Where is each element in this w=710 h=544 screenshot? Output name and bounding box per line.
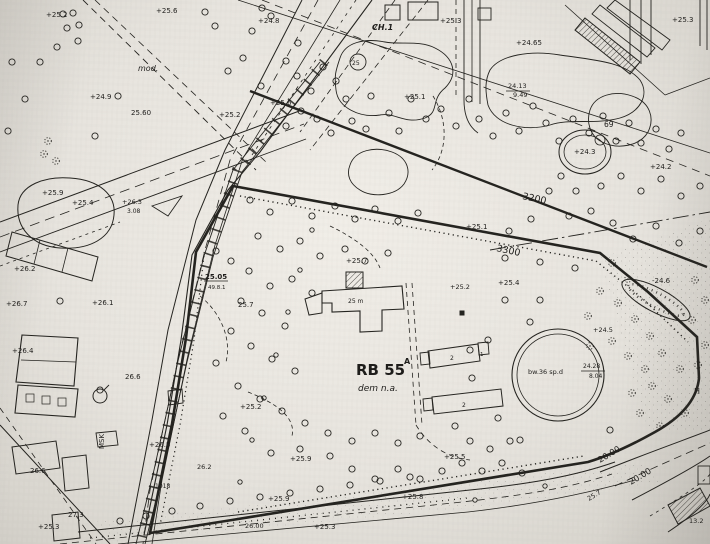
tree-symbol-dot (611, 262, 612, 263)
spot-label: 2 (462, 402, 466, 409)
tree-symbol (507, 438, 513, 444)
tree-symbol (197, 503, 203, 509)
tree-symbol (295, 40, 301, 46)
tree-symbol (417, 433, 423, 439)
tree-symbol (572, 265, 578, 271)
spot-label: +25.6 (156, 7, 178, 15)
tree-symbol (115, 93, 121, 99)
tree-symbol (249, 28, 255, 34)
tree-symbol (268, 450, 274, 456)
tree-symbol (97, 387, 103, 393)
tree-symbol-dot (649, 335, 650, 336)
tree-symbol-dot (704, 299, 705, 300)
spot-label: +25.8 (402, 493, 423, 501)
tree-symbol (573, 188, 579, 194)
tree-symbol (259, 310, 265, 316)
tree-symbol (467, 438, 473, 444)
tree-symbol (452, 423, 458, 429)
tree-symbol (423, 116, 429, 122)
tree-symbol (283, 58, 289, 64)
tree-symbol (292, 368, 298, 374)
tree-symbol-dot (639, 412, 640, 413)
tree-symbol (467, 347, 473, 353)
spot-label: +24.5 (593, 326, 613, 334)
spot-label: +26.4 (12, 347, 34, 355)
tree-symbol (349, 118, 355, 124)
tree-symbol (363, 126, 369, 132)
tree-symbol-dot (651, 385, 652, 386)
spot-label: +25.6 (270, 99, 292, 107)
tree-symbol (453, 123, 459, 129)
spot-label: +25.4 (72, 199, 94, 207)
tree-symbol (438, 106, 444, 112)
tree-symbol (499, 460, 505, 466)
tree-symbol (618, 173, 624, 179)
spot-label: +25.7 (346, 257, 367, 265)
tree-symbol (588, 208, 594, 214)
spot-label: 27.3 (68, 511, 84, 519)
tree-symbol-dot (587, 315, 588, 316)
tree-symbol (372, 430, 378, 436)
tree-symbol (70, 10, 76, 16)
tree-symbol (267, 283, 273, 289)
spot-label: +25.3 (440, 17, 461, 25)
tree-symbol (258, 83, 264, 89)
tree-symbol (54, 44, 60, 50)
tree-symbol (479, 468, 485, 474)
spot-label: +24.2 (650, 163, 671, 171)
spot-label: 26.00 (245, 522, 264, 530)
spot-label: +26.3 (122, 198, 142, 206)
tree-symbol (333, 78, 339, 84)
spot-label: 25 m (348, 298, 364, 305)
spot-label: +25.5 (444, 453, 465, 461)
tree-symbol-dot (627, 278, 628, 279)
spot-label: H (694, 387, 700, 396)
tree-symbol-dot (704, 344, 705, 345)
tree-symbol (9, 59, 15, 65)
spot-label: +26.7 (6, 300, 27, 308)
tree-symbol (92, 133, 98, 139)
spot-label: 69 (604, 120, 614, 129)
spot-label: 26.2 (197, 463, 211, 471)
spot-label: 20.00 (596, 444, 622, 465)
tree-symbol-dot (684, 412, 685, 413)
tree-symbol (267, 209, 273, 215)
tree-symbol-dot (659, 425, 660, 426)
spot-label: 25 (352, 60, 360, 67)
tree-symbol (242, 428, 248, 434)
tree-symbol-dot (667, 398, 668, 399)
tree-symbol (530, 103, 536, 109)
manhole-symbol (298, 268, 302, 272)
spot-label: 25.05 (205, 273, 227, 281)
spot-label: bw.36 sp.d (528, 368, 563, 376)
tree-symbol (487, 446, 493, 452)
spot-label: 13.2 (689, 517, 703, 525)
tree-symbol (528, 216, 534, 222)
tree-symbol (328, 130, 334, 136)
tree-symbol-dot (611, 340, 612, 341)
tree-symbol (395, 218, 401, 224)
tree-symbol (352, 216, 358, 222)
spot-label: 9.49 (513, 91, 527, 99)
spot-label: +25.9 (42, 189, 63, 197)
spot-label: +24.9 (90, 93, 111, 101)
tree-symbol-dot (697, 364, 698, 365)
tree-symbol (658, 176, 664, 182)
spot-label: mod. (138, 64, 158, 73)
tree-symbol (653, 126, 659, 132)
tree-symbol (466, 96, 472, 102)
manhole-symbol (310, 228, 314, 232)
tree-symbol (246, 268, 252, 274)
tree-symbol (469, 375, 475, 381)
manhole-symbol (286, 310, 290, 314)
tree-symbol-dot (694, 279, 695, 280)
spot-label: RB 55 (356, 361, 405, 379)
tree-symbol (257, 494, 263, 500)
spot-label: A (404, 357, 411, 366)
tree-symbol (343, 96, 349, 102)
tree-symbol (22, 96, 28, 102)
tree-symbol (309, 290, 315, 296)
tree-symbol (57, 298, 63, 304)
tree-symbol-dot (47, 140, 48, 141)
map-scan: +25.2+25.6+24.8+25.3CH.1+25.3mod.+24.925… (0, 0, 710, 544)
tree-symbol (415, 210, 421, 216)
tree-symbol (638, 140, 644, 146)
tree-symbol (169, 508, 175, 514)
tree-symbol (220, 413, 226, 419)
spot-label: +26.2 (14, 265, 35, 273)
tree-symbol (653, 223, 659, 229)
tree-symbol (325, 430, 331, 436)
spot-label: +25.3 (314, 523, 335, 531)
spot-label: 3.08 (127, 208, 141, 215)
spot-label: 24.13 (508, 82, 527, 90)
tree-symbol (279, 408, 285, 414)
map-labels: +25.2+25.6+24.8+25.3CH.1+25.3mod.+24.925… (6, 7, 703, 531)
tree-symbol (64, 25, 70, 31)
tree-symbol (240, 55, 246, 61)
tree-symbol (570, 116, 576, 122)
spot-label: 25.7 (238, 301, 254, 309)
tree-symbol (516, 128, 522, 134)
tree-symbol (396, 128, 402, 134)
tree-symbol (212, 23, 218, 29)
spot-label: +24.65 (516, 39, 542, 47)
tree-symbol (294, 73, 300, 79)
pole-symbol (460, 311, 465, 316)
tree-symbol-dot (589, 345, 590, 346)
spot-label: -24.6 (652, 277, 671, 285)
tree-symbol-dot (679, 368, 680, 369)
tree-symbol (626, 120, 632, 126)
tree-symbol (417, 476, 423, 482)
spot-label: +25.3 (672, 16, 693, 24)
tree-symbol (506, 228, 512, 234)
tree-symbol (282, 323, 288, 329)
tree-symbol (490, 133, 496, 139)
tree-symbol-dot (43, 153, 44, 154)
manhole-symbol (250, 438, 254, 442)
tree-symbol (527, 319, 533, 325)
tree-symbol (558, 173, 564, 179)
spot-label: 25.60 (131, 109, 151, 117)
tree-symbol (610, 220, 616, 226)
tree-symbol (349, 438, 355, 444)
spot-label: +25.2 (46, 11, 67, 19)
tree-symbol (607, 427, 613, 433)
tree-symbol (439, 468, 445, 474)
spot-label: CH.1 (372, 23, 393, 32)
spot-label: +25.9 (268, 495, 289, 503)
tree-symbol (317, 253, 323, 259)
manhole-symbol (238, 480, 242, 484)
tree-symbol (308, 88, 314, 94)
tree-symbol (537, 297, 543, 303)
tree-symbol (76, 22, 82, 28)
spot-label: 3200 (521, 191, 547, 207)
tree-symbol (517, 437, 523, 443)
tree-symbol (297, 238, 303, 244)
spot-label: 26.6 (125, 373, 141, 381)
tree-symbol (277, 246, 283, 252)
spot-label: 26.6 (30, 467, 46, 475)
spot-label: +25.2 (240, 403, 261, 411)
tree-symbol-dot (691, 319, 692, 320)
tree-symbol (213, 360, 219, 366)
spot-label: 2 (450, 355, 454, 362)
tree-symbol-dot (617, 302, 618, 303)
spot-label: +25.2 (219, 111, 240, 119)
spot-label: +25.9 (290, 455, 311, 463)
tree-symbol-dot (634, 318, 635, 319)
spot-label: +25.1 (404, 93, 425, 101)
spot-label: +26.5 (149, 441, 170, 449)
tree-symbol (342, 246, 348, 252)
tree-symbol (598, 183, 604, 189)
tree-symbol-dot (631, 392, 632, 393)
spot-label: dem n.a. (358, 384, 398, 394)
tree-symbol (37, 59, 43, 65)
tree-symbol (228, 328, 234, 334)
tree-symbol (368, 93, 374, 99)
spot-label: 49.8.1 (208, 285, 226, 291)
tree-symbol (327, 453, 333, 459)
tree-symbol (317, 486, 323, 492)
tree-symbol (537, 259, 543, 265)
tree-symbol (395, 466, 401, 472)
tree-symbol (75, 38, 81, 44)
tree-symbol (638, 188, 644, 194)
spot-label: +25.4 (498, 279, 520, 287)
tree-symbol (228, 258, 234, 264)
tree-symbol (225, 68, 231, 74)
tree-symbol (227, 498, 233, 504)
tree-symbol (347, 482, 353, 488)
tree-symbol (503, 110, 509, 116)
spot-label: MSK (98, 434, 106, 449)
spot-label: +24.8 (258, 17, 279, 25)
tree-symbol (678, 130, 684, 136)
tree-symbol (235, 383, 241, 389)
tree-symbol (202, 9, 208, 15)
spot-label: +25.2 (450, 283, 470, 291)
tree-symbol (289, 198, 295, 204)
manhole-symbol (274, 353, 278, 357)
tree-symbol (302, 420, 308, 426)
spot-label: 1 (480, 352, 484, 358)
tree-symbol (697, 183, 703, 189)
tree-symbol (248, 343, 254, 349)
spot-label: +25.1 (466, 223, 487, 231)
tree-symbol (476, 116, 482, 122)
tree-symbol (556, 138, 562, 144)
spot-label: +24.3 (574, 148, 595, 156)
tree-symbol (385, 250, 391, 256)
tree-symbol (255, 233, 261, 239)
tree-symbol (297, 446, 303, 452)
tree-symbol (283, 123, 289, 129)
map-canvas: +25.2+25.6+24.8+25.3CH.1+25.3mod.+24.925… (0, 0, 710, 544)
spot-label: 1018 (155, 483, 170, 490)
tree-symbol (407, 474, 413, 480)
tree-symbol (666, 146, 672, 152)
tree-symbol-dot (599, 290, 600, 291)
tree-symbol (349, 466, 355, 472)
tree-symbol (546, 188, 552, 194)
tree-symbol-dot (644, 368, 645, 369)
tree-symbol (678, 193, 684, 199)
tree-symbol (395, 440, 401, 446)
tree-symbol (495, 415, 501, 421)
tree-symbol (5, 128, 11, 134)
tree-symbol-dot (627, 355, 628, 356)
spot-label: 8.04 (589, 373, 603, 380)
spot-label: +25.3 (38, 523, 59, 531)
tree-symbol (289, 276, 295, 282)
tree-symbol (309, 213, 315, 219)
spot-label: +26.1 (92, 299, 113, 307)
tree-symbol-dot (55, 160, 56, 161)
spot-label: 24.28 (583, 363, 600, 370)
tree-symbol (543, 120, 549, 126)
tree-symbol (502, 297, 508, 303)
tree-symbol-dot (661, 352, 662, 353)
